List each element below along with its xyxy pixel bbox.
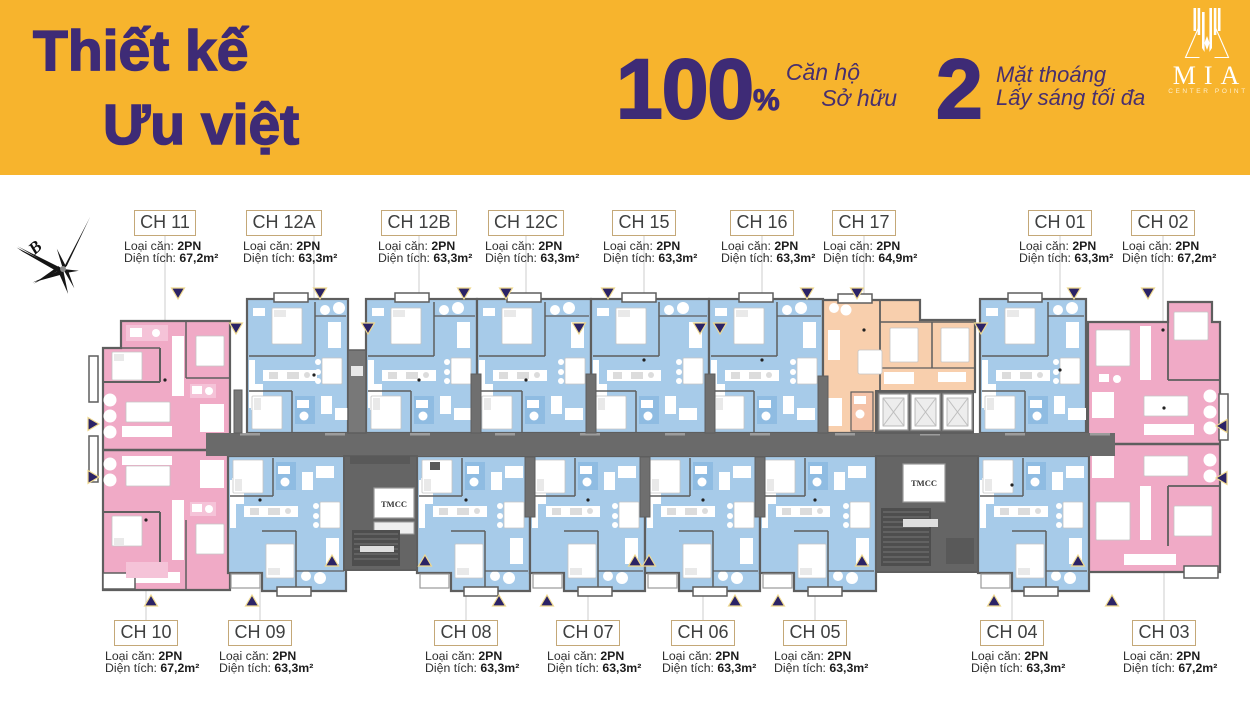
svg-text:B: B	[24, 237, 46, 259]
svg-text:TMCC: TMCC	[381, 499, 407, 509]
svg-text:TMCC: TMCC	[911, 478, 937, 488]
